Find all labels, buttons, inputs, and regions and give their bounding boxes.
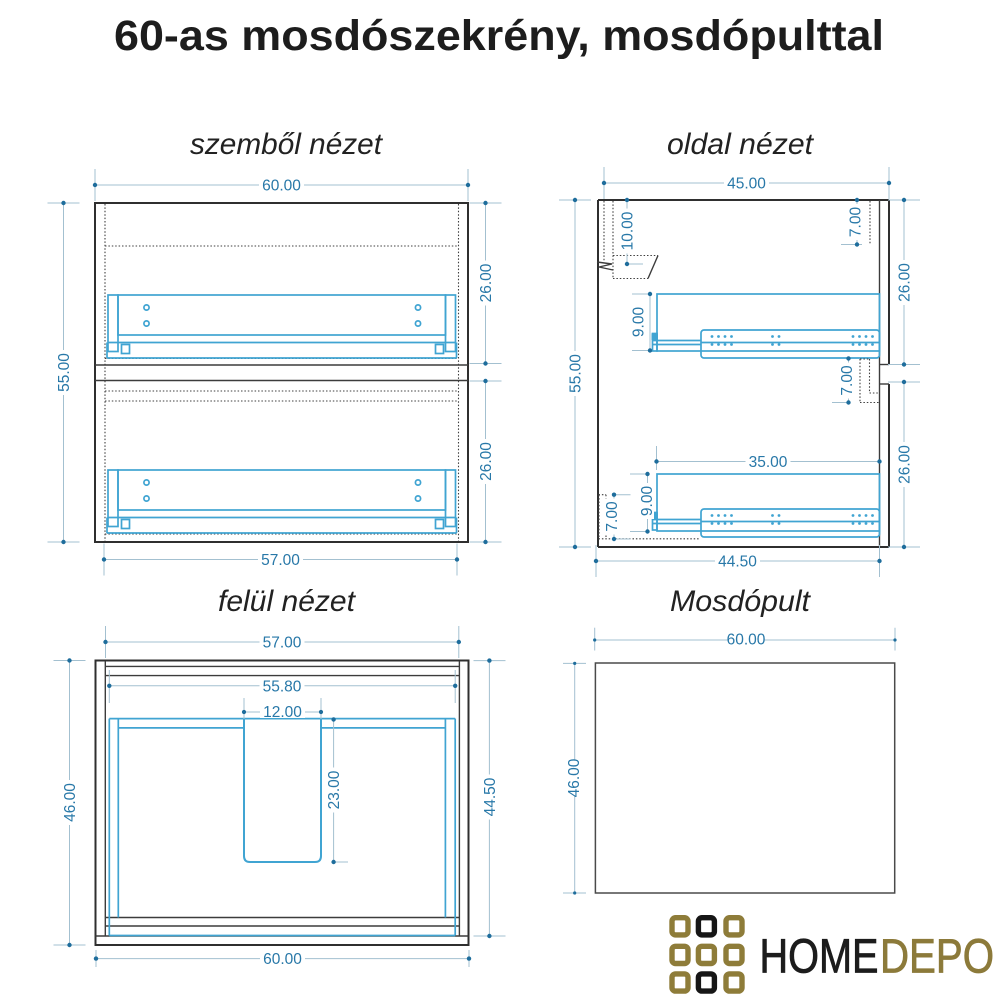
svg-text:7.00: 7.00	[604, 501, 621, 532]
svg-text:46.00: 46.00	[62, 783, 79, 822]
svg-text:Mosdópult: Mosdópult	[670, 585, 812, 618]
svg-text:60.00: 60.00	[263, 951, 302, 968]
svg-text:44.50: 44.50	[482, 777, 499, 816]
svg-text:HOME: HOME	[760, 930, 879, 984]
svg-text:oldal nézet: oldal nézet	[667, 128, 815, 161]
svg-text:23.00: 23.00	[326, 770, 343, 809]
svg-text:60.00: 60.00	[727, 632, 766, 649]
svg-text:44.50: 44.50	[718, 554, 757, 571]
svg-text:26.00: 26.00	[478, 263, 495, 302]
svg-text:26.00: 26.00	[897, 445, 914, 484]
svg-text:9.00: 9.00	[631, 307, 648, 338]
svg-text:felül nézet: felül nézet	[218, 585, 357, 618]
svg-text:7.00: 7.00	[848, 207, 865, 238]
svg-text:55.00: 55.00	[568, 354, 585, 393]
svg-text:45.00: 45.00	[727, 176, 766, 193]
svg-text:szemből nézet: szemből nézet	[190, 128, 384, 161]
svg-text:DEPO: DEPO	[880, 930, 994, 984]
svg-text:60-as mosdószekrény, mosdópult: 60-as mosdószekrény, mosdópulttal	[114, 12, 884, 60]
svg-text:26.00: 26.00	[897, 263, 914, 302]
svg-text:60.00: 60.00	[262, 178, 301, 195]
svg-text:55.00: 55.00	[56, 353, 73, 392]
svg-text:55.80: 55.80	[263, 679, 302, 696]
svg-text:26.00: 26.00	[478, 442, 495, 481]
svg-text:10.00: 10.00	[620, 211, 637, 250]
svg-text:57.00: 57.00	[261, 552, 300, 569]
svg-text:57.00: 57.00	[263, 635, 302, 652]
svg-text:12.00: 12.00	[263, 704, 302, 721]
svg-text:9.00: 9.00	[639, 486, 656, 517]
svg-text:35.00: 35.00	[749, 454, 788, 471]
svg-text:46.00: 46.00	[566, 758, 583, 797]
svg-text:7.00: 7.00	[839, 365, 856, 396]
